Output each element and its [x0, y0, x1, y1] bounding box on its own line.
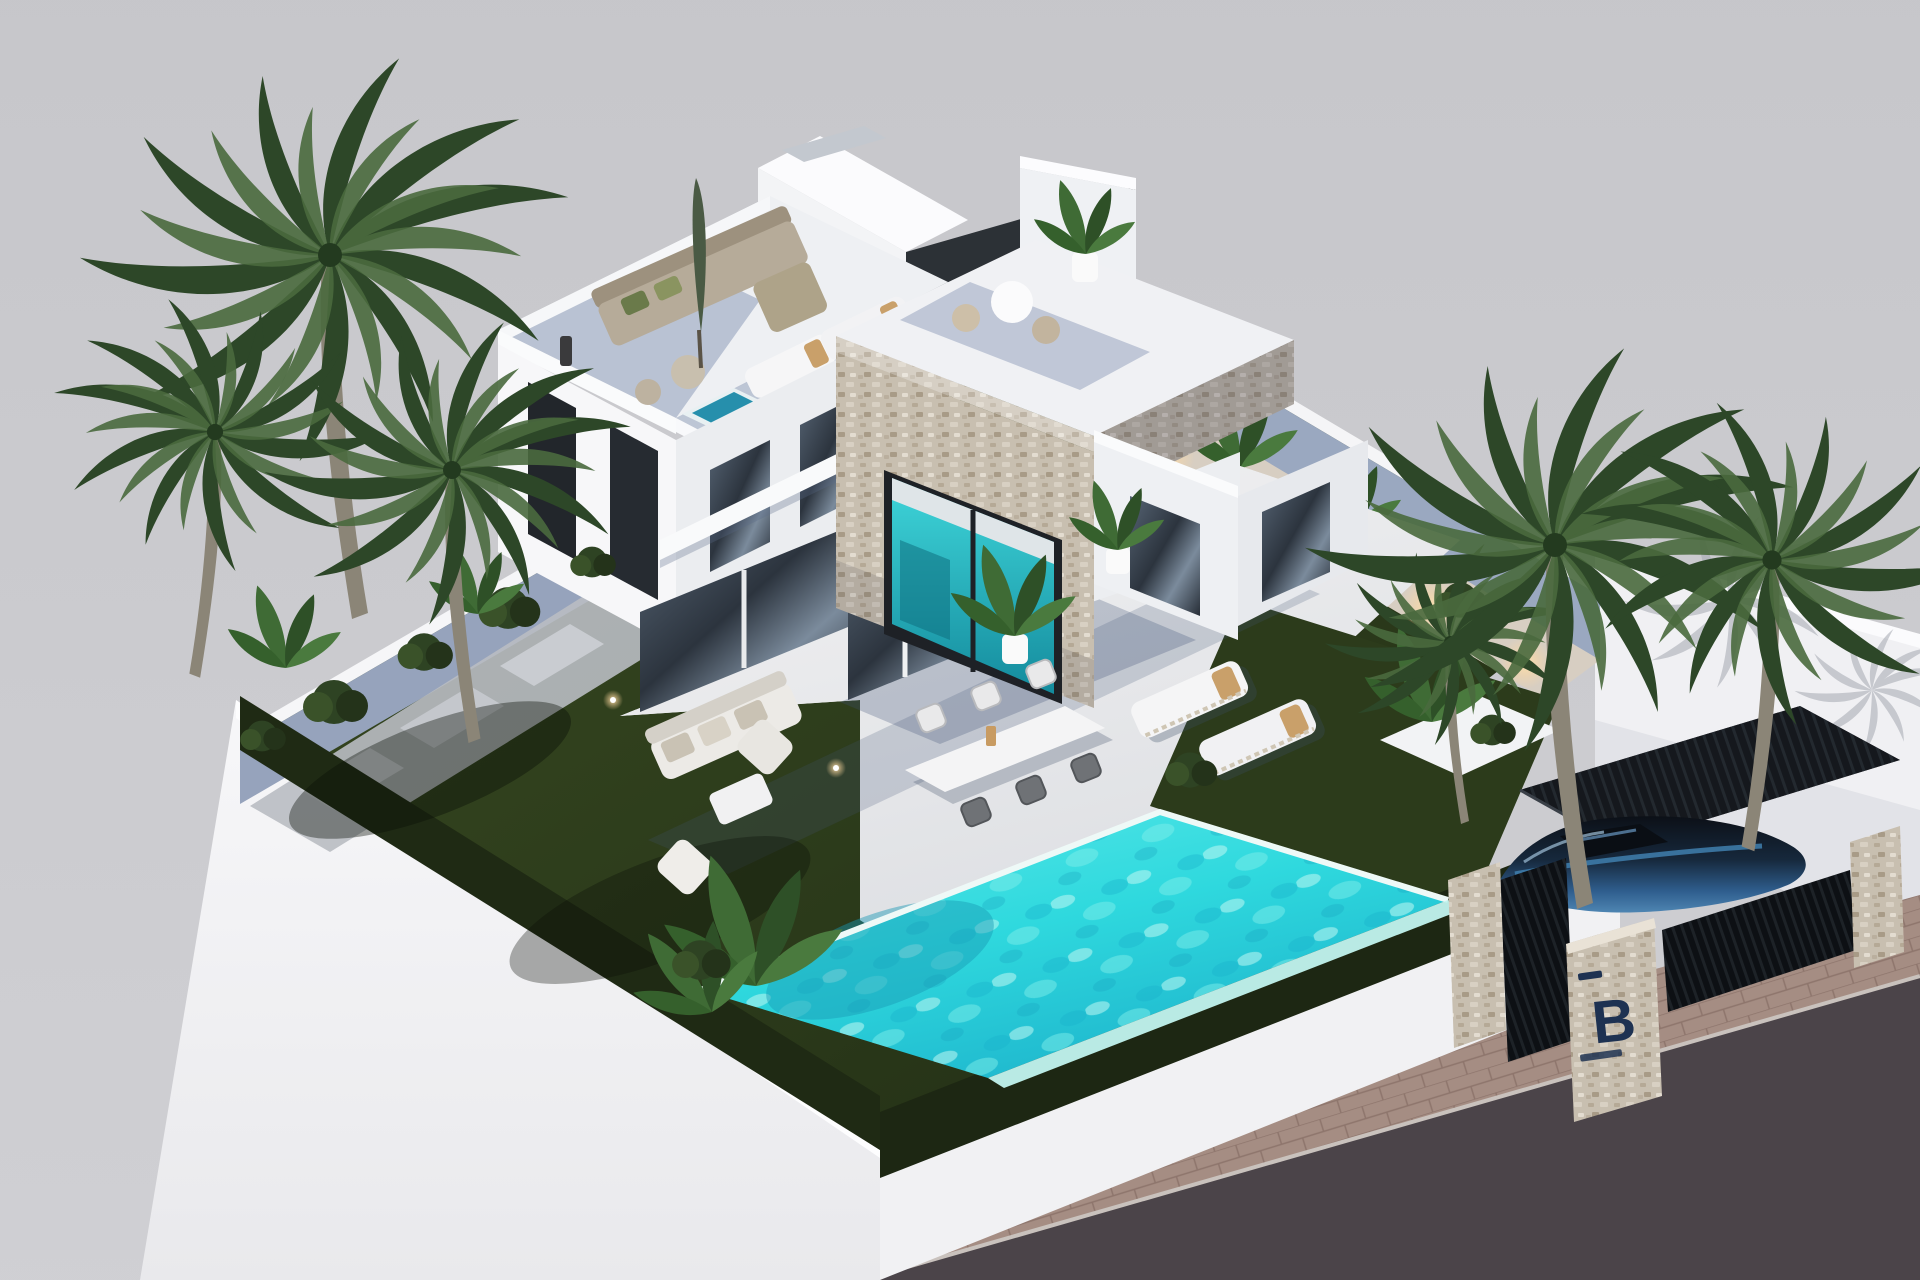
table-vase [986, 726, 996, 746]
lantern [560, 336, 572, 366]
villa-scene: B [0, 0, 1920, 1280]
plant-pot [1072, 252, 1098, 282]
gate-pillar-with-logo: B [1566, 918, 1662, 1122]
gate-pillar [1850, 826, 1904, 968]
gate-logo-letter: B [1589, 985, 1639, 1056]
gate-pillar [1448, 862, 1506, 1048]
render-canvas: B [0, 0, 1920, 1280]
